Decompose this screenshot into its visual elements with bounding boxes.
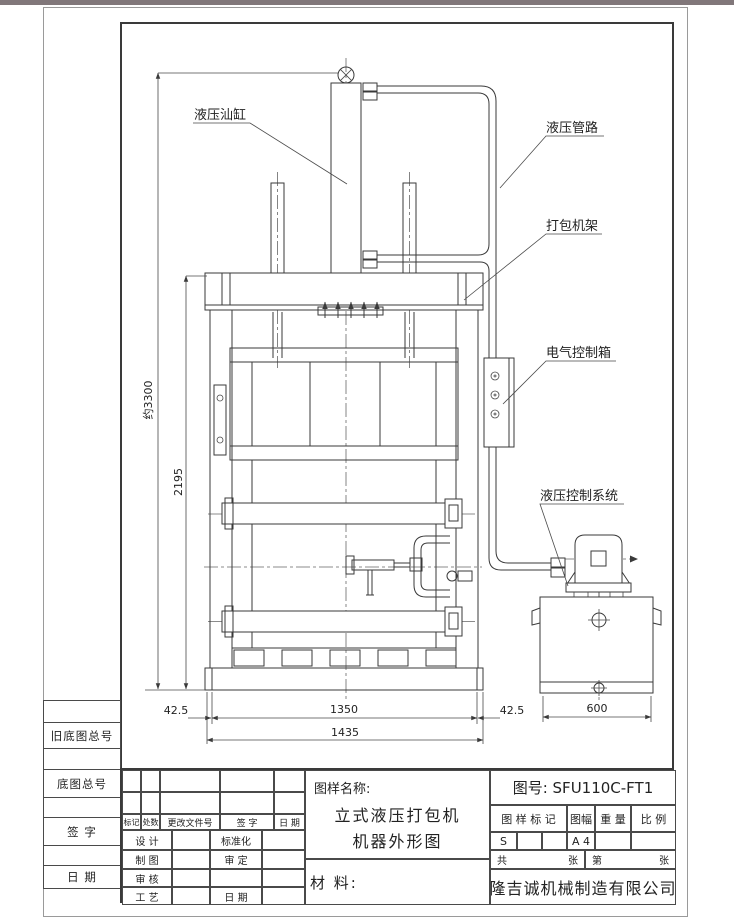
revision-empty-cell bbox=[220, 792, 274, 814]
svg-text:打包机架: 打包机架 bbox=[546, 219, 598, 234]
base-plate bbox=[145, 668, 483, 690]
svg-text:约3300: 约3300 bbox=[142, 381, 155, 420]
svg-text:液压汕缸: 液压汕缸 bbox=[194, 107, 246, 123]
sign-label-date: 日 期 bbox=[210, 887, 262, 905]
header-size: 图幅 bbox=[567, 805, 595, 832]
svg-text:1350: 1350 bbox=[330, 703, 358, 716]
pump-inlet-fitting bbox=[551, 558, 565, 567]
value-empty-cell bbox=[542, 832, 567, 850]
press-head-box bbox=[214, 348, 458, 460]
svg-text:液压控制系统: 液压控制系统 bbox=[540, 489, 618, 504]
sign-value bbox=[172, 887, 210, 905]
sheets-number: 第 张 bbox=[585, 850, 676, 869]
door-hinge-strip bbox=[214, 385, 226, 455]
callout-hydraulic-cylinder: 液压汕缸 bbox=[193, 107, 347, 184]
revision-empty-cell bbox=[220, 770, 274, 792]
revision-empty-cell bbox=[160, 792, 220, 814]
baler-frame-top-beam bbox=[205, 273, 483, 310]
revision-header-change-doc: 更改文件号 bbox=[160, 814, 220, 830]
margin-spacer-box bbox=[43, 797, 121, 818]
sign-value bbox=[262, 850, 305, 869]
title-block: 标记 处数 更改文件号 签 字 日 期 设 计 标准化 制 图 审 定 审 核 … bbox=[120, 768, 674, 903]
sheets-total: 共 张 bbox=[490, 850, 585, 869]
svg-text:电气控制箱: 电气控制箱 bbox=[546, 345, 611, 361]
sign-value bbox=[172, 830, 210, 850]
hydraulic-cylinder bbox=[331, 67, 361, 273]
sign-value bbox=[262, 869, 305, 887]
sign-value bbox=[262, 830, 305, 850]
door-handle bbox=[346, 556, 422, 595]
revision-empty-cell bbox=[141, 770, 160, 792]
hose-loop bbox=[414, 536, 450, 597]
svg-text:42.5: 42.5 bbox=[164, 704, 189, 717]
sheets-number-label: 第 bbox=[592, 852, 602, 867]
sheets-total-unit: 张 bbox=[568, 852, 578, 867]
sheets-total-label: 共 bbox=[497, 852, 507, 867]
svg-text:600: 600 bbox=[587, 702, 608, 715]
oil-tank bbox=[540, 597, 653, 693]
drawing-name-line2: 机器外形图 bbox=[305, 828, 490, 852]
callout-hydraulic-piping: 液压管路 bbox=[500, 120, 604, 188]
sign-label-approval: 审 定 bbox=[210, 850, 262, 869]
sign-value bbox=[172, 869, 210, 887]
motor bbox=[575, 535, 622, 585]
revision-empty-cell bbox=[160, 770, 220, 792]
value-scale-empty bbox=[631, 832, 676, 850]
margin-label-date: 日 期 bbox=[43, 865, 121, 889]
lock-bar-lower bbox=[222, 611, 462, 632]
sign-value bbox=[262, 887, 305, 905]
revision-empty-cell bbox=[274, 792, 305, 814]
dimension-bottom: 42.5 1350 42.5 1435 bbox=[164, 692, 525, 744]
sign-label-review: 审 核 bbox=[122, 869, 172, 887]
header-weight: 重 量 bbox=[595, 805, 631, 832]
revision-header-date: 日 期 bbox=[274, 814, 305, 830]
header-scale: 比 例 bbox=[631, 805, 676, 832]
drawing-name-label: 图样名称: bbox=[314, 778, 370, 797]
value-mark: S bbox=[490, 832, 517, 850]
revision-header-mark: 标记 bbox=[122, 814, 141, 830]
revision-empty-cell bbox=[274, 770, 305, 792]
revision-empty-cell bbox=[141, 792, 160, 814]
electrical-control-box bbox=[484, 358, 514, 447]
header-mark: 图 样 标 记 bbox=[490, 805, 567, 832]
sign-label-standardization: 标准化 bbox=[210, 830, 262, 850]
value-empty-cell bbox=[517, 832, 542, 850]
margin-label-base-no: 底图总号 bbox=[43, 769, 121, 798]
machine-outline-drawing: 约3300 2195 42.5 1350 42.5 1435 600 液压汕缸 bbox=[120, 22, 674, 768]
drawing-number: 图号: SFU110C-FT1 bbox=[490, 770, 676, 805]
dimension-overall-height: 约3300 bbox=[142, 73, 338, 689]
dimension-chamber-height: 2195 bbox=[172, 276, 207, 689]
margin-spacer-box bbox=[43, 748, 121, 770]
svg-text:42.5: 42.5 bbox=[500, 704, 525, 717]
sign-label-drafting: 制 图 bbox=[122, 850, 172, 869]
drawing-name-line1: 立式液压打包机 bbox=[305, 802, 490, 826]
sign-label-design: 设 计 bbox=[122, 830, 172, 850]
margin-label-old-base-no: 旧底图总号 bbox=[43, 722, 121, 749]
material-label: 材 料: bbox=[305, 859, 490, 905]
company-name: 隆吉诚机械制造有限公司 bbox=[490, 869, 676, 905]
revision-empty-cell bbox=[122, 770, 141, 792]
sign-empty-label bbox=[210, 869, 262, 887]
margin-spacer-box bbox=[43, 845, 121, 866]
bale-chamber bbox=[222, 460, 472, 666]
svg-text:液压管路: 液压管路 bbox=[546, 120, 598, 136]
dimension-tank-width: 600 bbox=[543, 696, 651, 722]
engineering-drawing-sheet: 旧底图总号 底图总号 签 字 日 期 bbox=[0, 0, 734, 921]
svg-text:2195: 2195 bbox=[172, 468, 185, 496]
value-weight-empty bbox=[595, 832, 631, 850]
callout-baler-frame: 打包机架 bbox=[464, 219, 602, 300]
lock-bar-upper bbox=[222, 503, 462, 524]
value-size: A 4 bbox=[567, 832, 595, 850]
sign-value bbox=[172, 850, 210, 869]
sheets-number-unit: 张 bbox=[659, 852, 669, 867]
scan-edge-strip bbox=[0, 0, 734, 5]
revision-header-count: 处数 bbox=[141, 814, 160, 830]
margin-label-signature: 签 字 bbox=[43, 817, 121, 846]
revision-empty-cell bbox=[122, 792, 141, 814]
svg-text:1435: 1435 bbox=[331, 726, 359, 739]
sign-label-process: 工 艺 bbox=[122, 887, 172, 905]
revision-header-signature: 签 字 bbox=[220, 814, 274, 830]
margin-spacer-box bbox=[43, 700, 121, 723]
callout-electric-control-box: 电气控制箱 bbox=[503, 345, 616, 404]
